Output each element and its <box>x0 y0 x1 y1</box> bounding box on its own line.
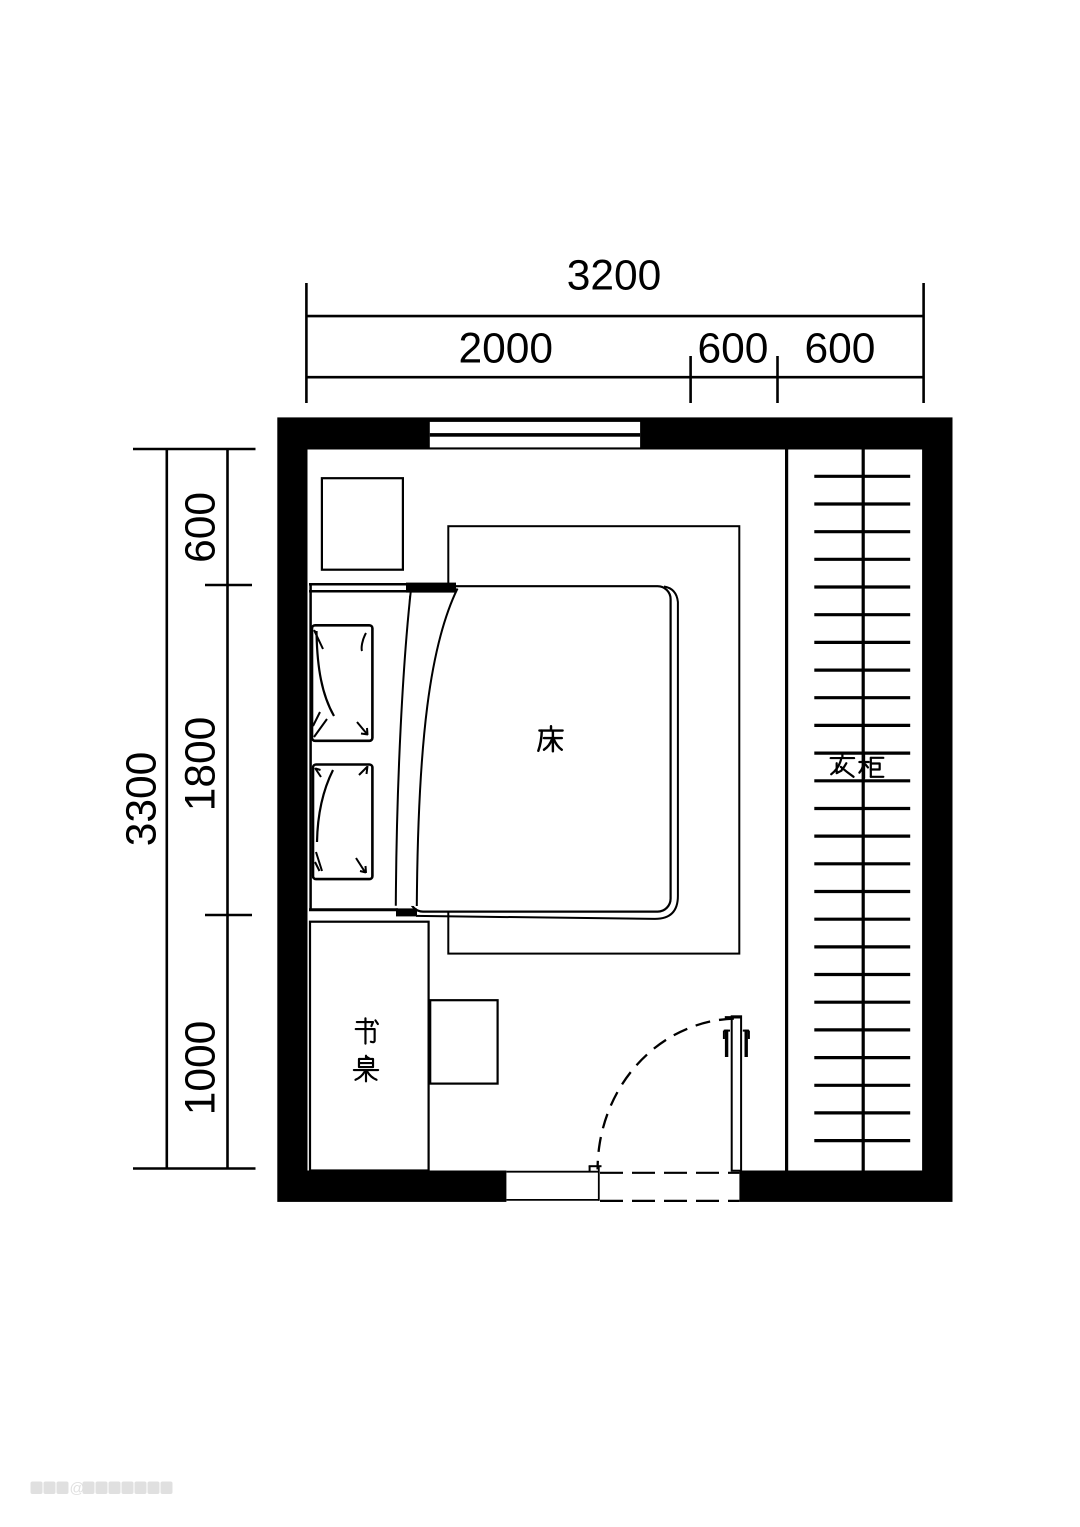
svg-text:600: 600 <box>178 492 225 563</box>
svg-text:3200: 3200 <box>567 253 662 300</box>
svg-text:3300: 3300 <box>119 752 166 847</box>
svg-text:1800: 1800 <box>178 717 225 812</box>
svg-text:600: 600 <box>697 326 768 373</box>
svg-text:2000: 2000 <box>459 326 554 373</box>
svg-text:600: 600 <box>805 326 876 373</box>
svg-text:@: @ <box>70 1480 85 1497</box>
svg-text:1000: 1000 <box>178 1021 225 1116</box>
